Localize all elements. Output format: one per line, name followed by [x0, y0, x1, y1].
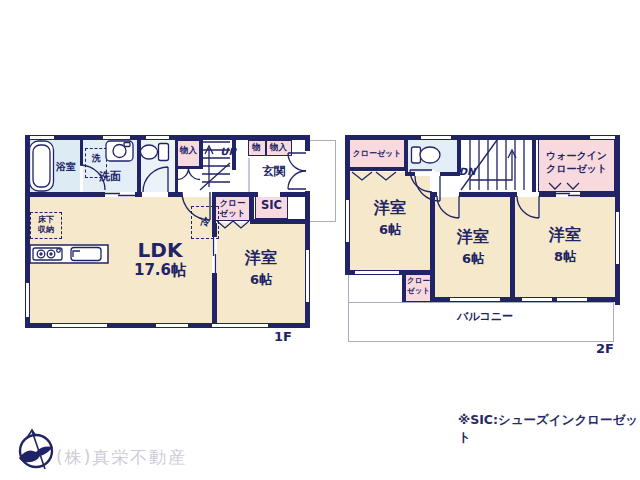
- room-label-bedroom1-2f-size: 6帖: [353, 223, 427, 236]
- toilet-door-arc-icon: [143, 167, 168, 192]
- label-cabinet-small: 物: [249, 143, 264, 152]
- room-label-bedroom3-2f-size: 8帖: [528, 250, 602, 263]
- washbasin-icon: [106, 141, 133, 161]
- bedroom1-door-arc-icon: [410, 170, 432, 192]
- label-closet-1f: クロー: [215, 199, 250, 208]
- label-hall-storage: 物入: [177, 146, 200, 155]
- toilet-icon: [412, 147, 441, 163]
- room-label-bedroom-1f: 洋室: [226, 250, 296, 266]
- room-label-ldk-size: 17.6帖: [118, 263, 202, 278]
- toilet-icon: [141, 144, 169, 161]
- label-balcony: バルコニー: [430, 311, 540, 322]
- room-label-bedroom1-2f: 洋室: [353, 200, 427, 216]
- room-label-bedroom2-2f: 洋室: [438, 229, 508, 245]
- label-sic: SIC: [255, 200, 288, 212]
- floorplan-page: 浴室 洗 洗面 物入 UP 物 物入 玄関 クロー ゼット SIC 冷 床下 収…: [0, 0, 640, 480]
- label-closet-1f: ゼット: [215, 209, 250, 218]
- label-cabinet: 物入: [266, 143, 291, 152]
- label-closet-small-2f: クロー: [405, 277, 432, 285]
- label-stairs-down: DN: [452, 167, 482, 177]
- room-label-entrance: 玄関: [252, 166, 296, 178]
- label-washer: 洗: [85, 154, 107, 163]
- room-label-ldk: LDK: [118, 240, 202, 260]
- label-wic: ウォークイン: [538, 151, 615, 161]
- floor-label-2f: 2F: [590, 342, 620, 355]
- label-stairs-up: UP: [214, 147, 242, 157]
- toilet2f-door-arc-icon: [415, 176, 440, 201]
- stairs-down-icon: [461, 140, 524, 190]
- label-underfloor: 収納: [30, 226, 62, 234]
- bedroom3-door-arc-icon: [517, 196, 539, 218]
- room-label-washroom: 洗面: [88, 171, 132, 182]
- room-label-bedroom-1f-size: 6帖: [226, 273, 296, 286]
- room-label-bedroom2-2f-size: 6帖: [438, 252, 508, 265]
- bifold-closet-marks-icon: [217, 221, 249, 228]
- label-fridge: 冷: [191, 217, 219, 227]
- label-closet-2f: クローゼット: [349, 150, 405, 158]
- storage-door-arcs-icon: [177, 168, 200, 180]
- label-wic: クローゼット: [538, 164, 615, 174]
- label-underfloor: 床下: [30, 216, 62, 224]
- label-closet-small-2f: ゼット: [405, 287, 432, 295]
- room-label-bedroom3-2f: 洋室: [528, 227, 602, 243]
- wic-sliding-door-icon: [556, 194, 582, 196]
- floor-label-1f: 1F: [268, 330, 298, 343]
- room-label-bath: 浴室: [50, 162, 82, 172]
